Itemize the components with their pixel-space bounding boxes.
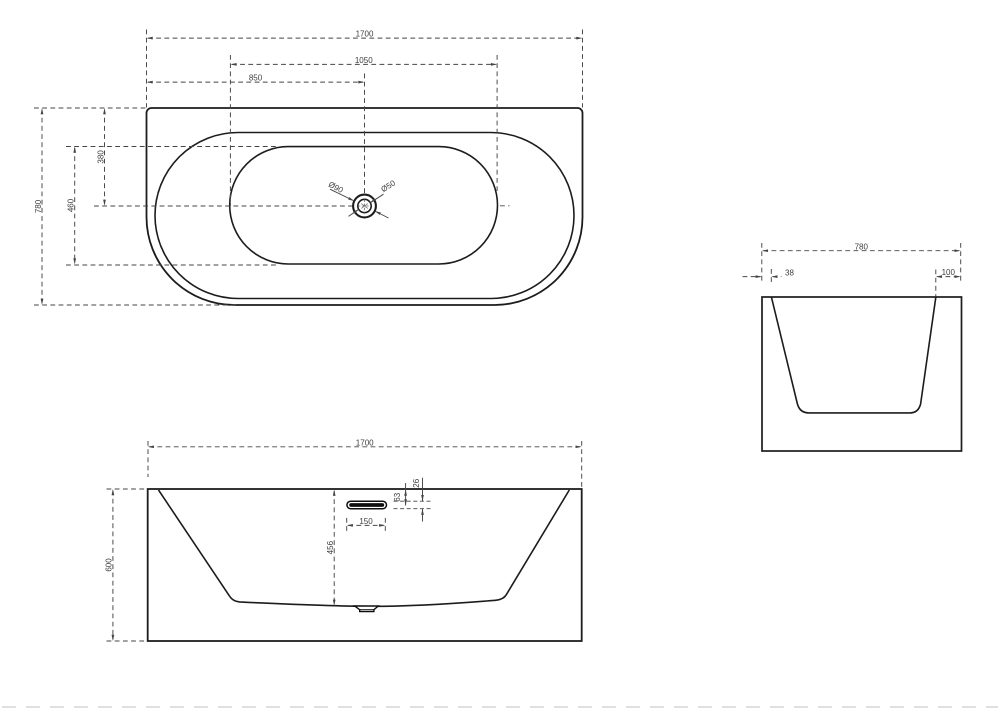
svg-text:380: 380 <box>96 150 105 164</box>
svg-text:26: 26 <box>412 478 421 487</box>
svg-text:460: 460 <box>67 198 76 212</box>
svg-text:100: 100 <box>942 268 956 277</box>
svg-text:1700: 1700 <box>356 30 374 39</box>
svg-text:780: 780 <box>34 199 43 213</box>
svg-text:38: 38 <box>785 268 794 277</box>
svg-text:150: 150 <box>359 517 373 526</box>
svg-text:1700: 1700 <box>356 438 374 447</box>
svg-text:456: 456 <box>326 540 335 554</box>
svg-text:1050: 1050 <box>355 56 373 65</box>
svg-text:780: 780 <box>855 242 869 251</box>
svg-text:63: 63 <box>393 492 402 501</box>
svg-text:600: 600 <box>105 558 114 572</box>
svg-text:850: 850 <box>249 74 263 83</box>
